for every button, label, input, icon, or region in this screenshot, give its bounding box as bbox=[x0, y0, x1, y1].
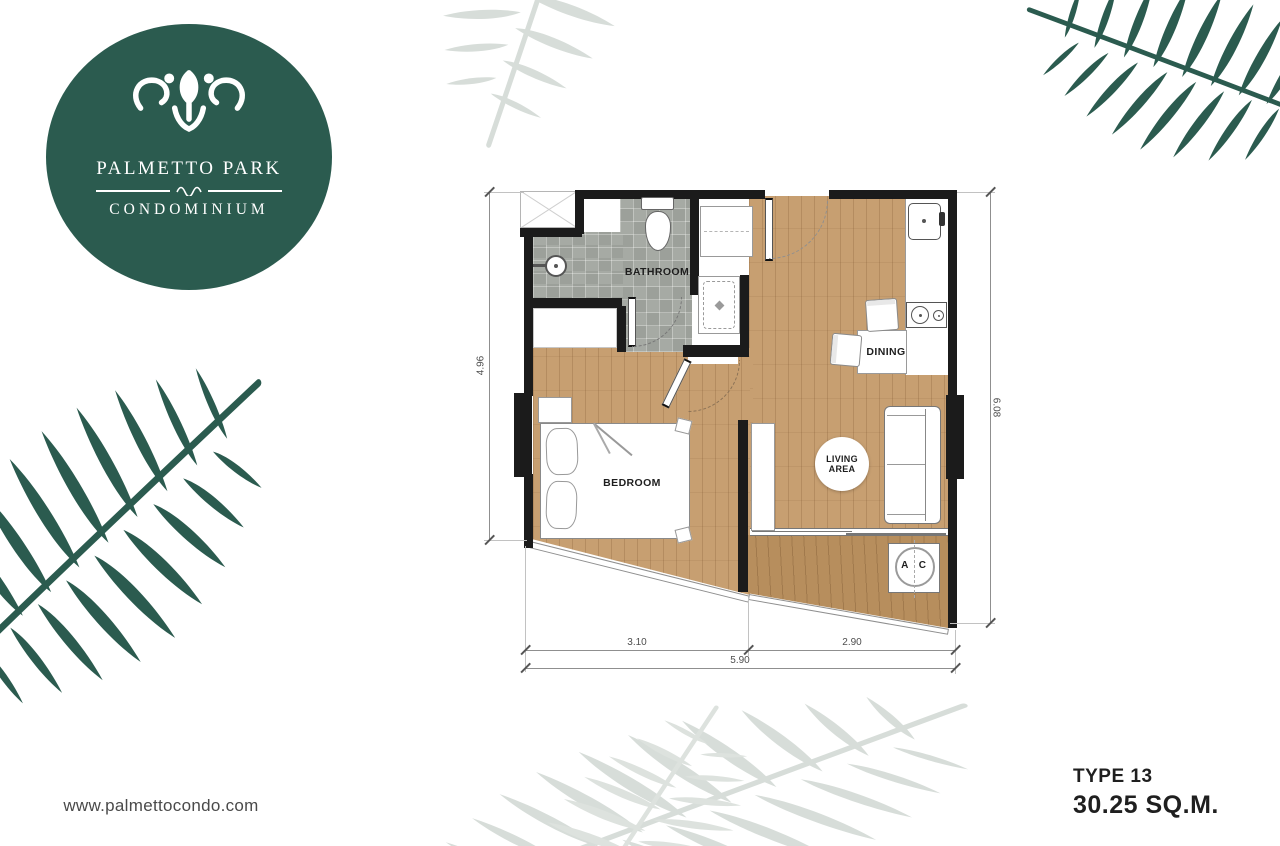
dimension-bottom-right-label: 2.90 bbox=[836, 637, 868, 648]
service-shaft bbox=[520, 191, 576, 228]
pillow bbox=[545, 427, 579, 475]
shower-tray bbox=[698, 276, 740, 334]
dining-chair bbox=[830, 333, 863, 367]
wall bbox=[829, 190, 957, 199]
brand-logo: PALMETTO PARK CONDOMINIUM bbox=[46, 24, 332, 290]
dimension-bottom-left-label: 3.10 bbox=[621, 637, 653, 648]
dimension-left-label: 4.96 bbox=[476, 351, 487, 381]
palmetto-crest-icon bbox=[123, 68, 255, 146]
window-left bbox=[514, 393, 532, 477]
dimension-right-label: 6.08 bbox=[991, 393, 1002, 423]
brand-name-line1: PALMETTO PARK bbox=[96, 158, 281, 180]
extension-line bbox=[525, 546, 526, 672]
living-area-badge: LIVING AREA bbox=[815, 437, 869, 491]
tv-console bbox=[751, 423, 775, 531]
dimension-bottom-total-label: 5.90 bbox=[724, 655, 756, 666]
brand-name-line2: CONDOMINIUM bbox=[109, 201, 268, 219]
living-area-label-line1: LIVING bbox=[826, 454, 858, 464]
sofa bbox=[884, 406, 941, 524]
stove bbox=[906, 302, 947, 328]
shower-arm bbox=[533, 264, 546, 267]
dimension-line-bottom-row1 bbox=[525, 650, 955, 651]
wall bbox=[617, 306, 626, 352]
bedroom-label: BEDROOM bbox=[603, 477, 661, 489]
palm-leaf-bottom-small-icon bbox=[498, 742, 778, 846]
blanket-fold-line bbox=[593, 423, 632, 456]
kitchen-faucet-icon bbox=[939, 212, 945, 226]
wall bbox=[683, 345, 745, 357]
shower-head-icon bbox=[545, 255, 567, 277]
wall bbox=[738, 420, 748, 592]
wall bbox=[526, 298, 622, 308]
flyer-canvas: PALMETTO PARK CONDOMINIUM bbox=[0, 0, 1280, 846]
dimension-line-bottom-row2 bbox=[525, 668, 955, 669]
window-right bbox=[946, 395, 964, 479]
ac-unit: A C bbox=[888, 543, 940, 593]
unit-info: TYPE 13 30.25 SQ.M. bbox=[1073, 766, 1219, 820]
extension-line bbox=[484, 540, 527, 541]
kitchen-sink bbox=[908, 203, 941, 240]
unit-type: TYPE 13 bbox=[1073, 766, 1219, 788]
storage-alcove bbox=[533, 308, 617, 348]
unit-area: 30.25 SQ.M. bbox=[1073, 791, 1219, 820]
ac-label: A C bbox=[897, 560, 934, 571]
balcony-sliding-door bbox=[750, 528, 948, 536]
blanket-fold-line bbox=[593, 423, 610, 454]
dining-label: DINING bbox=[866, 346, 905, 358]
dining-chair bbox=[865, 298, 899, 332]
wall bbox=[524, 228, 533, 396]
website-url: www.palmettocondo.com bbox=[28, 796, 294, 816]
wall bbox=[524, 474, 533, 548]
entry-closet bbox=[700, 206, 753, 257]
palm-leaf-left-icon bbox=[0, 370, 268, 692]
living-area-label-line2: AREA bbox=[829, 464, 856, 474]
pillow bbox=[545, 480, 578, 529]
bathroom-label: BATHROOM bbox=[625, 266, 689, 278]
palm-leaf-top-right-icon bbox=[1040, 0, 1280, 171]
dimension-line-left bbox=[489, 192, 490, 540]
logo-divider bbox=[96, 186, 282, 196]
toilet-tank bbox=[641, 197, 674, 210]
palm-leaf-top-center-icon bbox=[398, 0, 698, 85]
logo-divider-ornament-icon bbox=[176, 186, 202, 196]
nightstand bbox=[538, 397, 572, 423]
